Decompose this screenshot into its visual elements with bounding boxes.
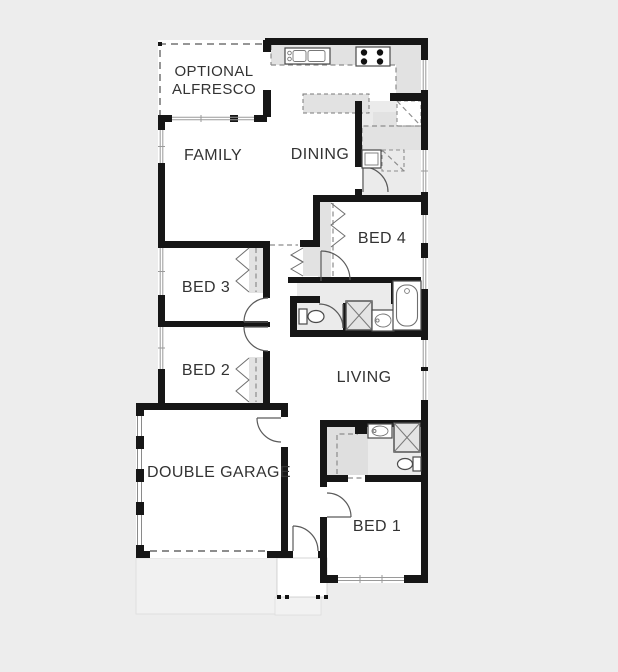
wall-right-1 xyxy=(421,38,428,60)
driveway-slab xyxy=(136,558,277,614)
ensuite-shower-icon xyxy=(394,423,420,452)
floorplan-canvas: OPTIONAL ALFRESCO FAMILY DINING BED 4 BE… xyxy=(0,0,618,672)
window-living-right-2 xyxy=(421,371,428,400)
porch-pillar-4 xyxy=(324,595,328,599)
wall-garage-bottom-a xyxy=(136,551,150,558)
garage-pier-2 xyxy=(136,436,144,449)
garage-pier-3 xyxy=(136,469,144,482)
wall-garage-right-a xyxy=(281,403,288,417)
window-pantry-right xyxy=(421,60,428,90)
kitchen-bench-return xyxy=(396,45,421,93)
wall-left-2 xyxy=(158,163,165,248)
wall-top xyxy=(265,38,428,45)
window-family-left xyxy=(158,130,165,163)
wall-right-7 xyxy=(421,400,428,583)
window-bed1-bottom xyxy=(338,575,404,583)
wall-family-top-b xyxy=(230,115,238,122)
wall-wir-stub xyxy=(355,427,367,434)
wall-family-top-c xyxy=(254,115,267,122)
wall-entry-bottom-a xyxy=(281,551,293,558)
wall-left-4 xyxy=(158,369,165,405)
kitchen-sink-icon xyxy=(285,48,330,64)
wall-garage-top xyxy=(136,403,288,410)
wall-laundry-top xyxy=(390,93,428,101)
wall-family-bed3 xyxy=(158,241,265,248)
wall-bed1-left-b xyxy=(320,517,327,583)
porch-pillar-3 xyxy=(316,595,320,599)
wall-bed1-bottom-a xyxy=(320,575,338,583)
porch-pillar-2 xyxy=(285,595,289,599)
wall-bed1-top-b xyxy=(365,475,428,482)
label-garage: DOUBLE GARAGE xyxy=(147,464,291,481)
window-bed4-right-1 xyxy=(421,215,428,243)
wall-bed1-top-a xyxy=(320,475,348,482)
floorplan-svg: OPTIONAL ALFRESCO FAMILY DINING BED 4 BE… xyxy=(0,0,618,672)
window-bed3-left xyxy=(158,248,165,295)
window-laundry-right xyxy=(421,150,428,192)
label-dining: DINING xyxy=(291,146,349,163)
porch-slab xyxy=(277,558,327,597)
alfresco-corner-dot xyxy=(158,42,162,46)
wall-wc-top xyxy=(290,296,320,303)
wall-bed4-top xyxy=(313,195,428,202)
wall-bedhall-c xyxy=(263,351,270,403)
wall-right-4 xyxy=(421,243,428,258)
label-bed3: BED 3 xyxy=(182,279,230,296)
wall-right-6 xyxy=(421,367,428,371)
garage-pier-1 xyxy=(136,403,144,416)
window-bed2-left xyxy=(158,327,165,369)
sliding-door-family xyxy=(172,115,254,122)
wall-bed1-bottom-b xyxy=(404,575,428,583)
bathtub-icon xyxy=(393,281,421,330)
walk-in-robe xyxy=(327,427,368,475)
wc-toilet-icon xyxy=(299,309,324,324)
label-bed2: BED 2 xyxy=(182,362,230,379)
label-alfresco-line1: OPTIONAL xyxy=(174,63,253,80)
ensuite-vanity-icon xyxy=(368,424,392,438)
label-bed4: BED 4 xyxy=(358,230,406,247)
window-bed4-right-2 xyxy=(421,258,428,289)
laundry-bench xyxy=(362,126,421,150)
main-shower-icon xyxy=(346,301,372,330)
wall-left-3 xyxy=(158,295,165,321)
wall-linen-top xyxy=(300,240,318,247)
wall-kitchen-left-a xyxy=(263,40,271,52)
label-living: LIVING xyxy=(337,369,392,386)
window-living-right-1 xyxy=(421,340,428,367)
wall-kitchen-left-b xyxy=(263,90,271,117)
wall-living-top xyxy=(290,330,428,337)
wall-bed4-left xyxy=(313,195,320,247)
porch-pillar-1 xyxy=(277,595,281,599)
wall-linen-bottom xyxy=(288,277,318,283)
ensuite-toilet-icon xyxy=(398,457,422,471)
label-alfresco-line2: ALFRESCO xyxy=(172,81,256,98)
label-family: FAMILY xyxy=(184,147,242,164)
main-vanity-icon xyxy=(372,310,394,331)
cooktop-icon xyxy=(356,47,390,66)
wall-laundry-left xyxy=(355,101,362,167)
linen-cupboard xyxy=(303,247,318,276)
porch-step xyxy=(275,597,321,615)
bed2-robe xyxy=(249,357,265,403)
laundry-tub-icon xyxy=(362,150,381,168)
wall-garage-right-b xyxy=(281,447,288,551)
wall-family-top-a xyxy=(158,115,172,122)
label-bed1: BED 1 xyxy=(353,518,401,535)
wall-laundry-stub xyxy=(355,189,362,198)
garage-pier-4 xyxy=(136,502,144,515)
wall-bedhall-a xyxy=(263,241,270,298)
bed3-robe xyxy=(249,247,265,293)
